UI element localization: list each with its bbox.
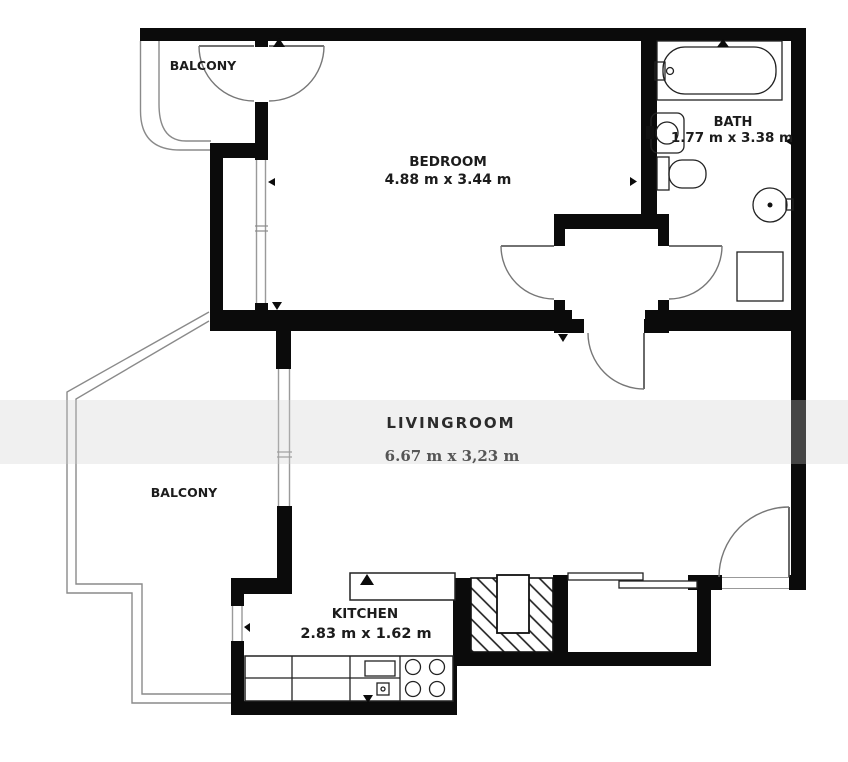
wall-segment (255, 41, 268, 47)
bath-dims: 1.77 m x 3.38 m (671, 130, 793, 146)
bedroom-label: BEDROOM (409, 154, 487, 170)
wall-segment (645, 310, 806, 331)
shaft (471, 575, 553, 652)
kitchen-window (230, 606, 245, 641)
shaft-duct (497, 575, 529, 633)
wall-segment (231, 594, 244, 606)
wall-segment (210, 143, 223, 315)
bath-label: BATH (714, 115, 753, 130)
kitchen-counter (245, 656, 453, 701)
wall-segment (554, 214, 669, 229)
wall-segment (554, 229, 565, 246)
bedroom-dims: 4.88 m x 3.44 m (385, 172, 512, 188)
floorplan-drawing: BALCONY BEDROOM 4.88 m x 3.44 m BATH 1.7… (0, 0, 848, 762)
wall-segment (658, 229, 669, 246)
balcony-top-label: BALCONY (170, 58, 237, 73)
kitchen-counter-peninsula (350, 573, 455, 600)
balcony-left-label: BALCONY (151, 485, 218, 500)
bedroom-window (254, 160, 268, 303)
livingroom-label: LIVINGROOM (386, 414, 515, 432)
wall-segment (553, 652, 711, 666)
wall-segment (789, 575, 806, 590)
kitchen-label: KITCHEN (332, 606, 398, 622)
wall-segment (210, 310, 572, 331)
wall-segment (697, 577, 711, 666)
wall-segment (554, 300, 565, 319)
wall-segment (231, 578, 292, 594)
livingroom-dims: 6.67 m x 3,23 m (385, 447, 520, 465)
wall-segment (276, 331, 291, 369)
wall-segment (453, 652, 568, 666)
wall-segment (140, 28, 806, 41)
wall-segment (554, 319, 584, 333)
wall-segment (231, 701, 457, 715)
wall-segment (791, 28, 806, 590)
wall-segment (277, 506, 292, 586)
floorplan: BALCONY BEDROOM 4.88 m x 3.44 m BATH 1.7… (0, 0, 848, 762)
kitchen-dims: 2.83 m x 1.62 m (300, 626, 431, 642)
wall-segment (231, 641, 244, 711)
